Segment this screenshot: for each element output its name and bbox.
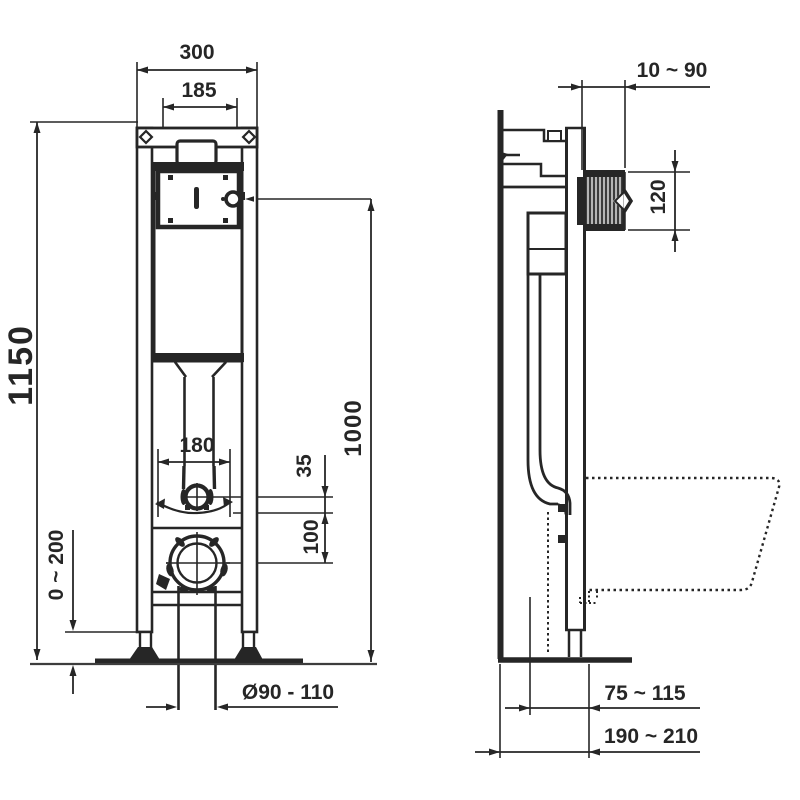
side-structure [501, 110, 587, 659]
front-view: 300 185 1150 0 ~ 200 180 1000 [2, 41, 377, 711]
feet-and-floor [30, 632, 377, 664]
dim-drain-to-wall: 75 ~ 115 [604, 682, 685, 705]
dim-frame-height: 1150 [2, 324, 40, 406]
left-rail [137, 128, 152, 632]
flush-valve [528, 213, 566, 274]
cistern-top-tab [177, 141, 216, 164]
panel-marker [194, 187, 199, 209]
foot-plate [234, 647, 263, 660]
cistern-bottom-band [153, 353, 244, 362]
dim-plate-width: 185 [181, 79, 216, 102]
flush-plate-housing [577, 170, 631, 231]
dim-frame-depth: 190 ~ 210 [604, 725, 698, 748]
side-view: 10 ~ 90 120 75 ~ 115 190 ~ 210 [475, 59, 779, 758]
cistern [152, 141, 245, 362]
dim-drain-diameter: Ø90 - 110 [242, 681, 334, 704]
dim-plate-height: 120 [647, 179, 670, 214]
dim-supply-offset: 35 [293, 454, 316, 478]
side-cistern [498, 151, 570, 655]
technical-drawing-canvas: 300 185 1150 0 ~ 200 180 1000 [0, 0, 800, 800]
dim-supply-to-drain: 100 [300, 519, 323, 554]
dim-overall-width: 300 [179, 41, 214, 64]
dim-foot-adjustment: 0 ~ 200 [45, 530, 68, 601]
right-rail [242, 128, 257, 632]
flush-button-icon [226, 192, 240, 206]
drain-clip-icon [156, 574, 170, 590]
bowl-dotted-profile [586, 478, 779, 590]
dim-flush-pipe-spacing: 180 [179, 434, 214, 457]
bowl-outlet-stub [580, 591, 597, 603]
dim-panel-height: 1000 [340, 399, 367, 456]
bowl-fixing-rod-icon [558, 535, 567, 543]
technical-drawing-page: 300 185 1150 0 ~ 200 180 1000 [0, 0, 800, 800]
piping [152, 362, 242, 710]
toilet-bowl-outline [580, 478, 779, 603]
dim-wall-finish-range: 10 ~ 90 [637, 59, 708, 82]
foot-plate [129, 647, 160, 660]
